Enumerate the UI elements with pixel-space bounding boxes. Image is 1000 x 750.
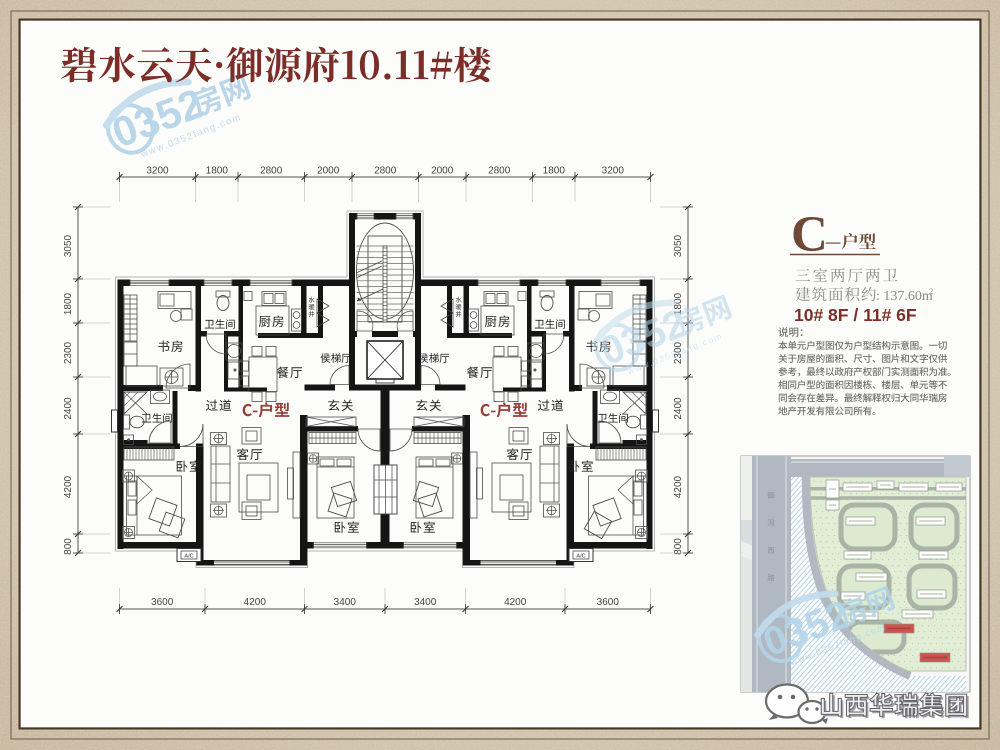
svg-text:3050: 3050 [673, 234, 684, 257]
svg-text:2300: 2300 [63, 341, 74, 364]
svg-text:3600: 3600 [151, 597, 174, 608]
svg-text:3600: 3600 [597, 597, 620, 608]
svg-text:A/C: A/C [184, 554, 193, 560]
svg-text:3050: 3050 [63, 234, 74, 257]
svg-text:2800: 2800 [374, 166, 397, 177]
svg-text:3400: 3400 [414, 597, 437, 608]
svg-text:4200: 4200 [673, 475, 684, 498]
svg-text:1800: 1800 [543, 166, 566, 177]
svg-text:3400: 3400 [334, 597, 357, 608]
svg-text:2800: 2800 [488, 166, 511, 177]
svg-text:A/C: A/C [576, 554, 585, 560]
svg-text:2800: 2800 [260, 166, 283, 177]
svg-text:3200: 3200 [602, 166, 625, 177]
svg-text:4200: 4200 [63, 475, 74, 498]
svg-text:1800: 1800 [206, 166, 229, 177]
svg-text:2000: 2000 [431, 166, 454, 177]
svg-text:2400: 2400 [63, 397, 74, 420]
svg-text:2000: 2000 [317, 166, 340, 177]
svg-text:2400: 2400 [673, 397, 684, 420]
svg-text:3200: 3200 [146, 166, 169, 177]
svg-text:800: 800 [673, 538, 684, 555]
svg-text:4200: 4200 [244, 597, 267, 608]
svg-text:800: 800 [63, 538, 74, 555]
svg-text:: 137.60m: : 137.60m [876, 289, 933, 304]
svg-text:1800: 1800 [63, 292, 74, 315]
svg-text:10# 8F / 11# 6F: 10# 8F / 11# 6F [794, 305, 917, 325]
svg-text:2: 2 [929, 286, 933, 296]
svg-text:4200: 4200 [504, 597, 527, 608]
